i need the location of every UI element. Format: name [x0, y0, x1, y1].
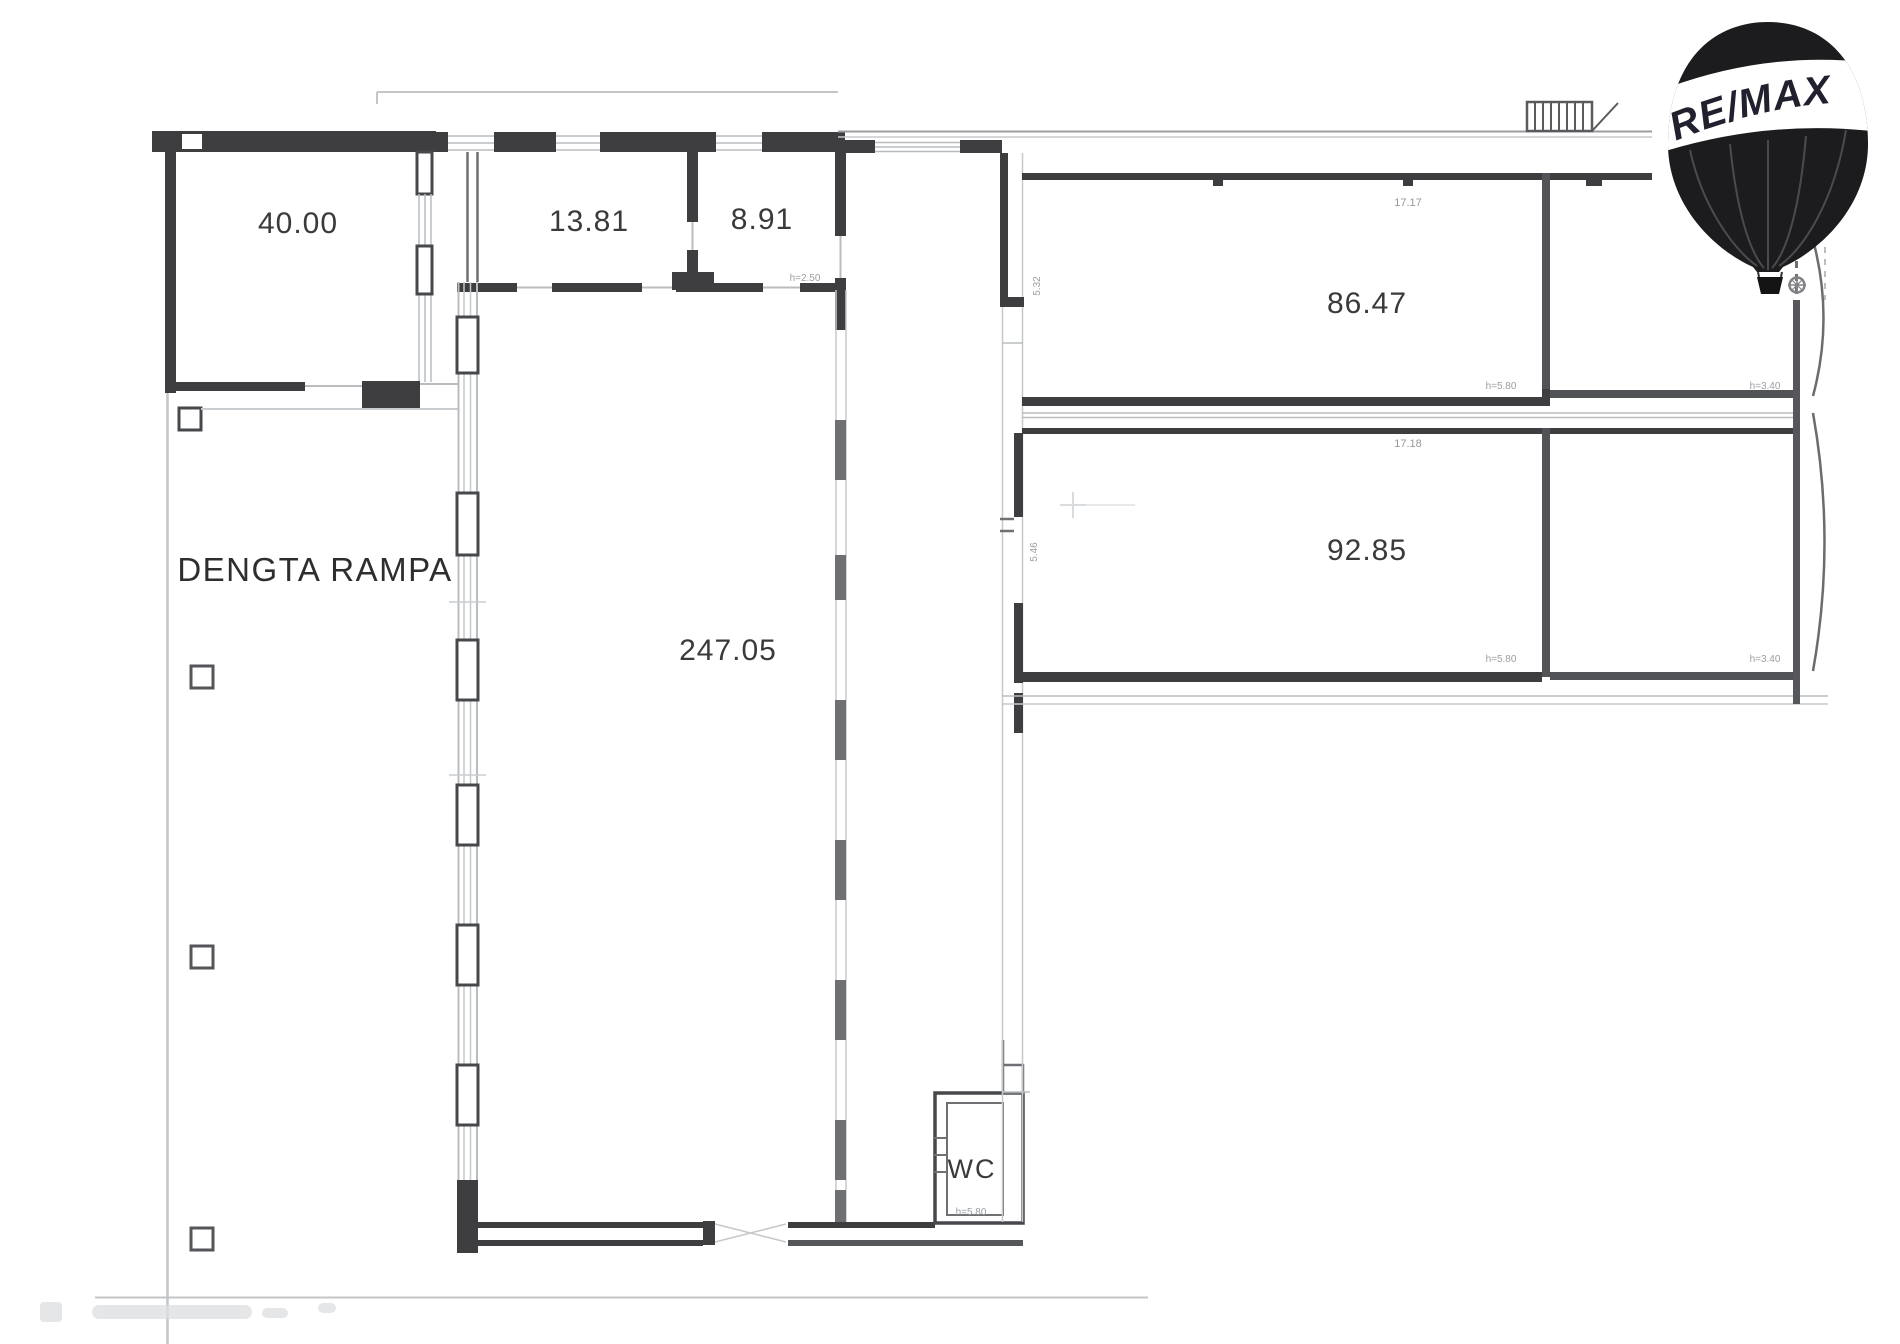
east-strip-walls [845, 140, 1024, 1222]
dim-h580-lower-label: h=5.80 [1486, 654, 1517, 665]
dim-h580-upper-label: h=5.80 [1486, 381, 1517, 392]
floor-plan-svg: 40.00 13.81 8.91 [0, 0, 1900, 1344]
dengta-rampa-label: DENGTA RAMPA [177, 551, 452, 588]
dim-h250-label: h=2.50 [790, 273, 821, 284]
dim-1717-label: 17.17 [1394, 197, 1422, 209]
balloon-basket [1757, 272, 1783, 294]
wc-label: WC [948, 1154, 997, 1184]
room-40-label: 40.00 [258, 207, 338, 240]
compass-icon [1788, 276, 1806, 294]
room-8647-label: 86.47 [1327, 287, 1407, 320]
boundary-marker-square [191, 666, 213, 688]
boundary-marker-square [191, 1228, 213, 1250]
dimension-brace-upper [1813, 240, 1824, 396]
dim-h340-upper-label: h=3.40 [1750, 381, 1781, 392]
room-1381-label: 13.81 [549, 205, 629, 238]
room-891-label: 8.91 [731, 203, 793, 236]
dim-532-label: 5.32 [1032, 276, 1043, 296]
survey-cross [1060, 492, 1135, 518]
wc-room [933, 1040, 1030, 1223]
room-9285-label: 92.85 [1327, 534, 1407, 567]
dim-546-label: 5.46 [1029, 542, 1040, 562]
hall-label: 247.05 [679, 634, 777, 667]
remax-balloon-logo: RE/MAX [1652, 0, 1900, 294]
boundary-marker-square [191, 946, 213, 968]
room-40-walls [152, 131, 458, 430]
wc-height-label: h=5.80 [956, 1207, 987, 1218]
floor-plan-page: 40.00 13.81 8.91 [0, 0, 1900, 1344]
dimension-brace-lower [1813, 413, 1825, 671]
stairs-icon [1527, 102, 1618, 131]
boundary-markers [191, 666, 213, 1250]
dim-1718-label: 17.18 [1394, 438, 1422, 450]
faint-watermark [40, 1302, 336, 1322]
dim-h340-lower-label: h=3.40 [1750, 654, 1781, 665]
